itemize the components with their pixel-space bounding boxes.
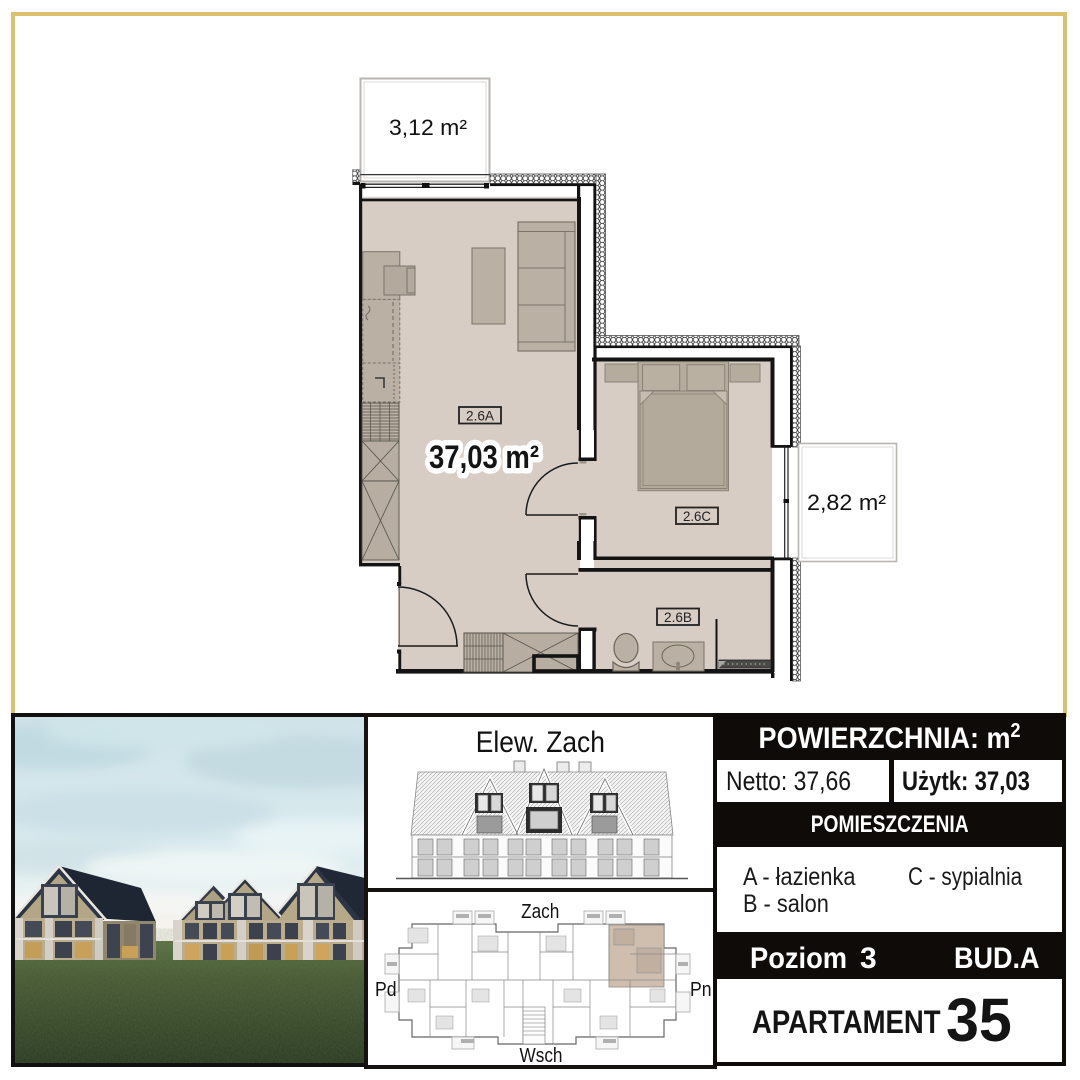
svg-text:2.6B: 2.6B — [664, 609, 692, 625]
svg-text:2,82 m²: 2,82 m² — [807, 490, 886, 515]
svg-text:3,12 m²: 3,12 m² — [389, 115, 467, 140]
svg-text:37,03 m²: 37,03 m² — [429, 439, 539, 475]
svg-text:2.6A: 2.6A — [466, 408, 495, 424]
svg-text:2.6C: 2.6C — [683, 508, 711, 524]
